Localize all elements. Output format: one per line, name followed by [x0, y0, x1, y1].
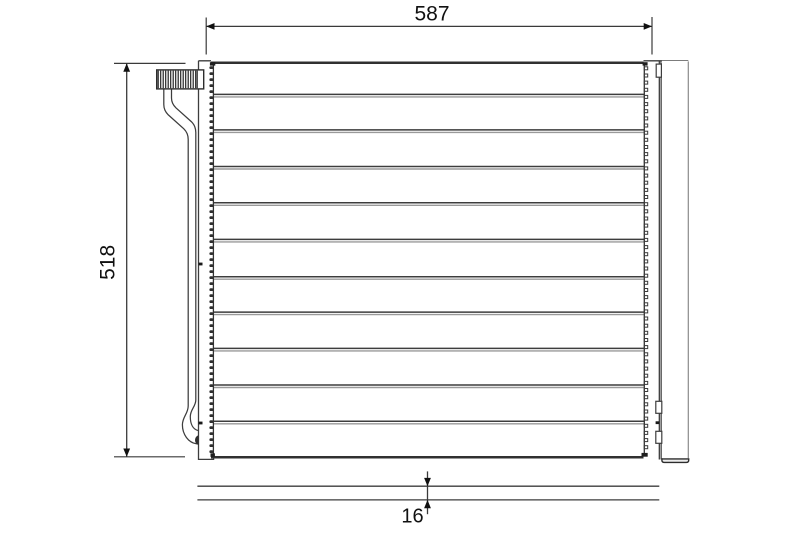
- svg-text:16: 16: [401, 506, 423, 528]
- svg-text:518: 518: [97, 245, 120, 280]
- svg-text:587: 587: [414, 3, 449, 26]
